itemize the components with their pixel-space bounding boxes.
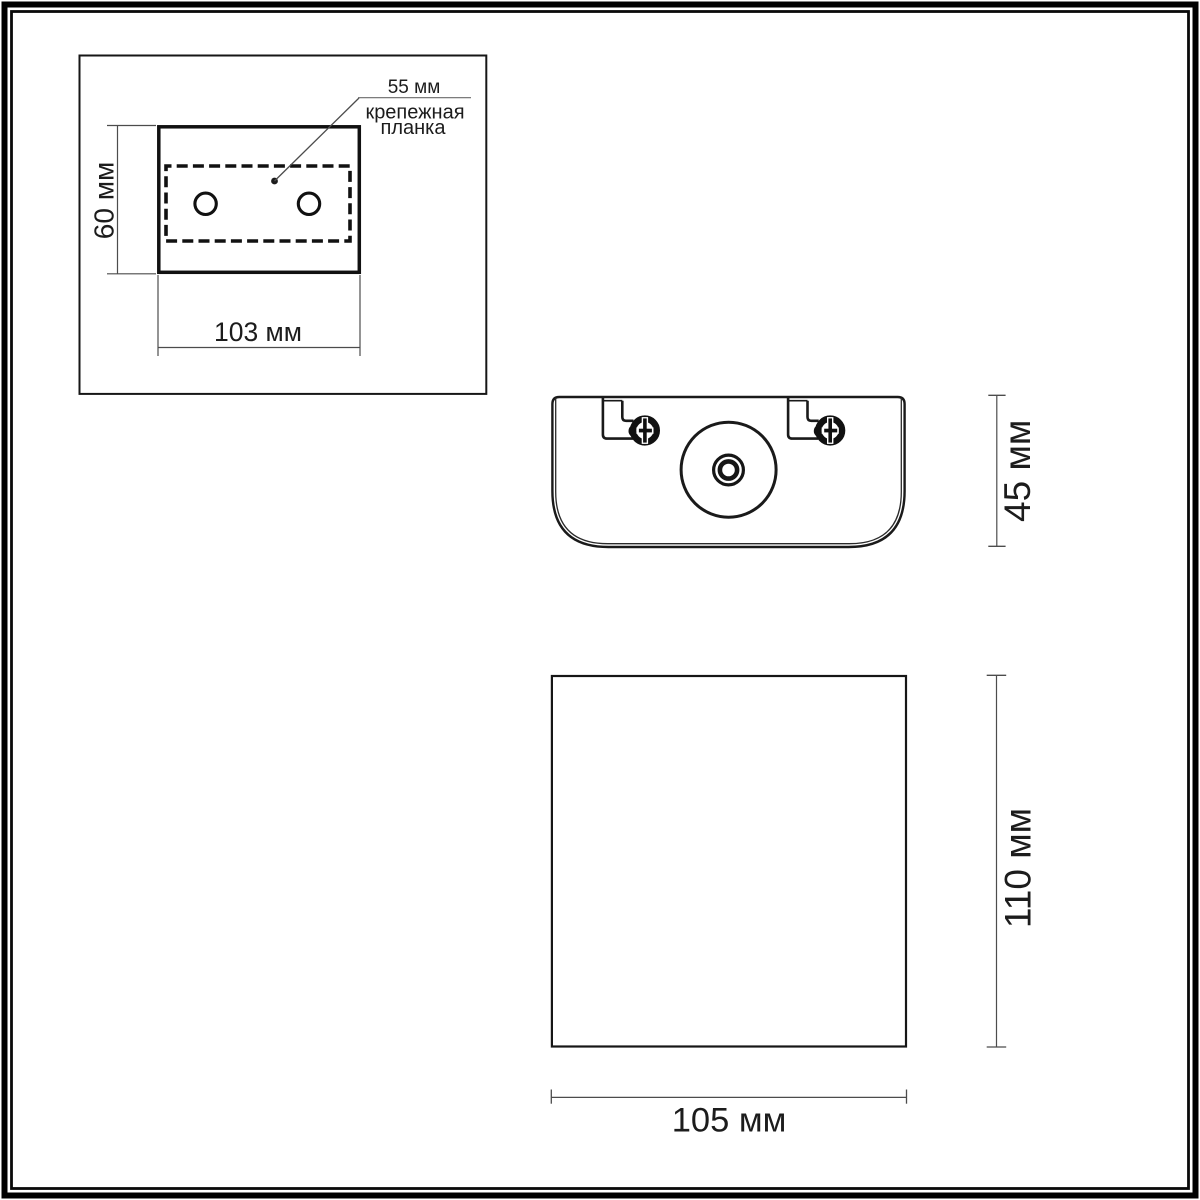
svg-text:планка: планка [381, 117, 447, 139]
svg-text:105 мм: 105 мм [672, 1102, 787, 1140]
svg-text:60 мм: 60 мм [89, 162, 120, 239]
svg-text:45 мм: 45 мм [997, 420, 1038, 522]
svg-text:55 мм: 55 мм [388, 77, 441, 98]
svg-text:103 мм: 103 мм [214, 317, 302, 347]
svg-text:110 мм: 110 мм [998, 808, 1039, 928]
